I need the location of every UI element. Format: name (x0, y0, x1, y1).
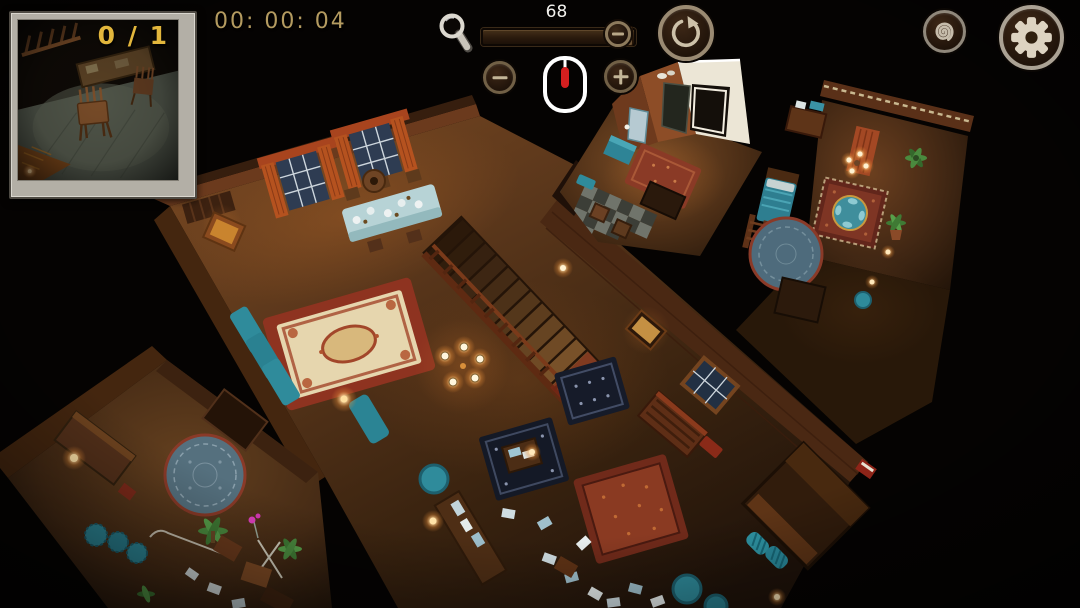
timer: 00: 00: 04 (214, 9, 347, 34)
magnifier-icon (436, 9, 478, 57)
zoom-in-button[interactable] (604, 60, 637, 93)
reset-view-button[interactable] (658, 5, 714, 61)
thumb-minus-mark (612, 33, 624, 36)
circular-arrow-icon (662, 9, 710, 57)
gear-icon (1003, 9, 1060, 66)
objective-counter: 0 / 1 (98, 21, 169, 50)
objective-preview-frame[interactable]: 0 / 1 (9, 11, 197, 199)
zoom-out-button[interactable] (483, 61, 516, 94)
zoom-slider[interactable] (481, 28, 632, 42)
mouse-scroll-wheel-highlight (561, 67, 569, 88)
minus-icon (492, 76, 507, 80)
hint-button[interactable] (923, 10, 966, 53)
plus-icon-v (619, 69, 623, 84)
settings-button[interactable] (999, 5, 1064, 70)
mouse-scroll-hint-icon (543, 56, 587, 113)
spiral-icon (926, 13, 963, 50)
game-viewport[interactable]: 0 / 1 00: 00: 04 68 (0, 0, 1080, 608)
objective-preview-image: 0 / 1 (17, 19, 179, 181)
zoom-value: 68 (481, 2, 632, 22)
